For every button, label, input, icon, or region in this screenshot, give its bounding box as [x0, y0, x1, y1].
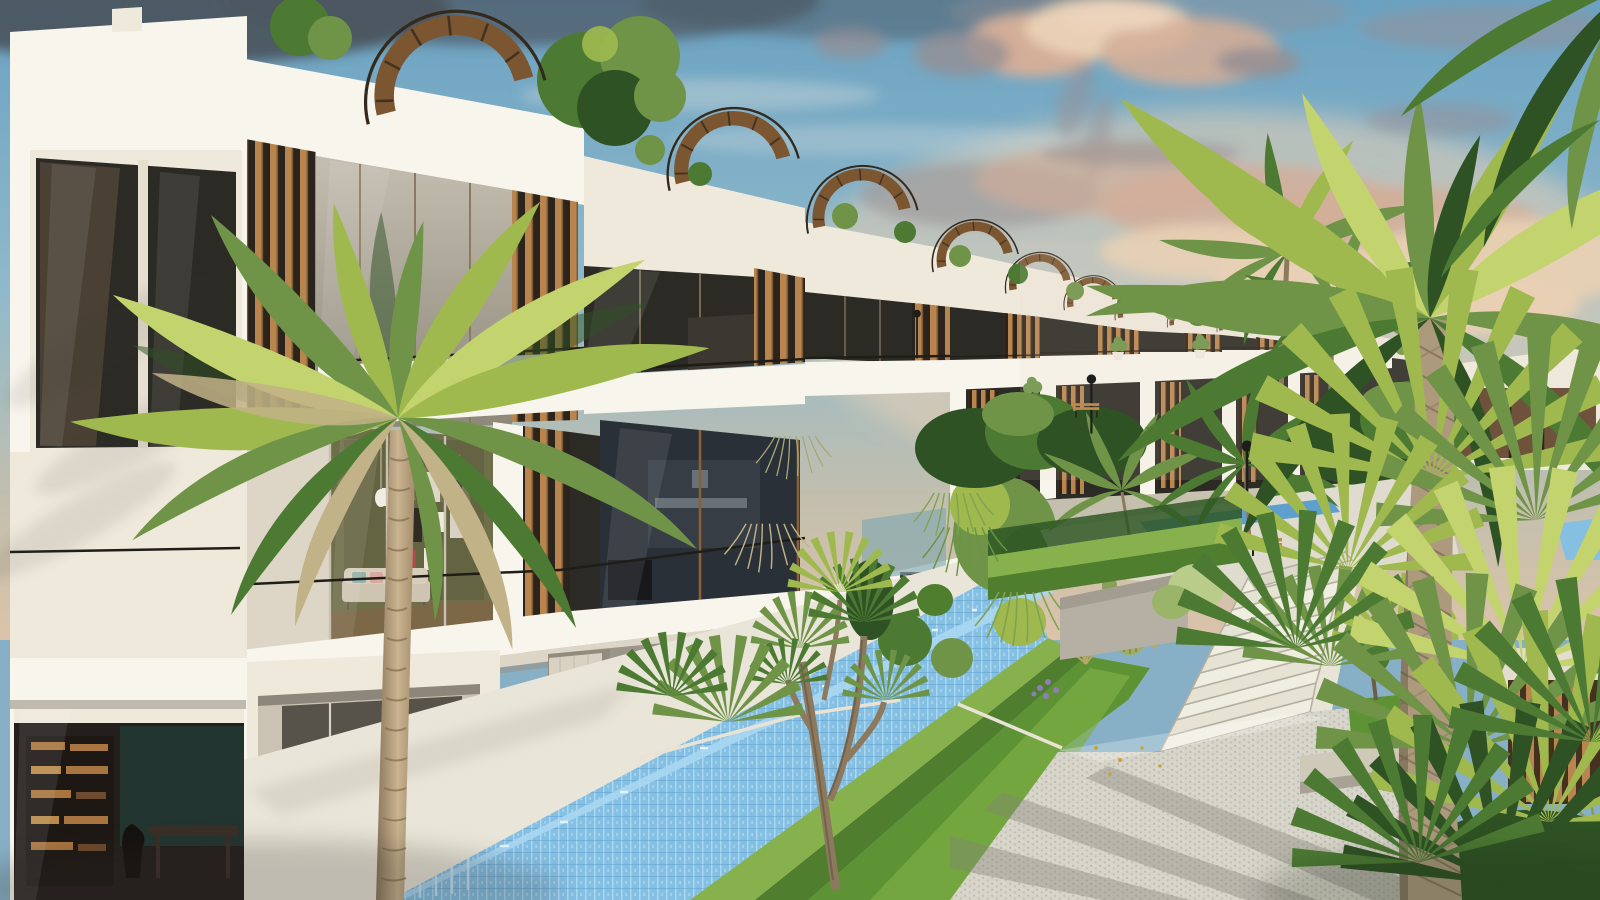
roof-parapet-block [112, 7, 142, 32]
unit-2-slat-screen [754, 268, 805, 366]
architectural-render [0, 0, 1600, 900]
end-block [0, 7, 276, 900]
end-balcony-slab [10, 658, 246, 706]
desk [150, 826, 238, 836]
render-canvas [0, 0, 1600, 900]
